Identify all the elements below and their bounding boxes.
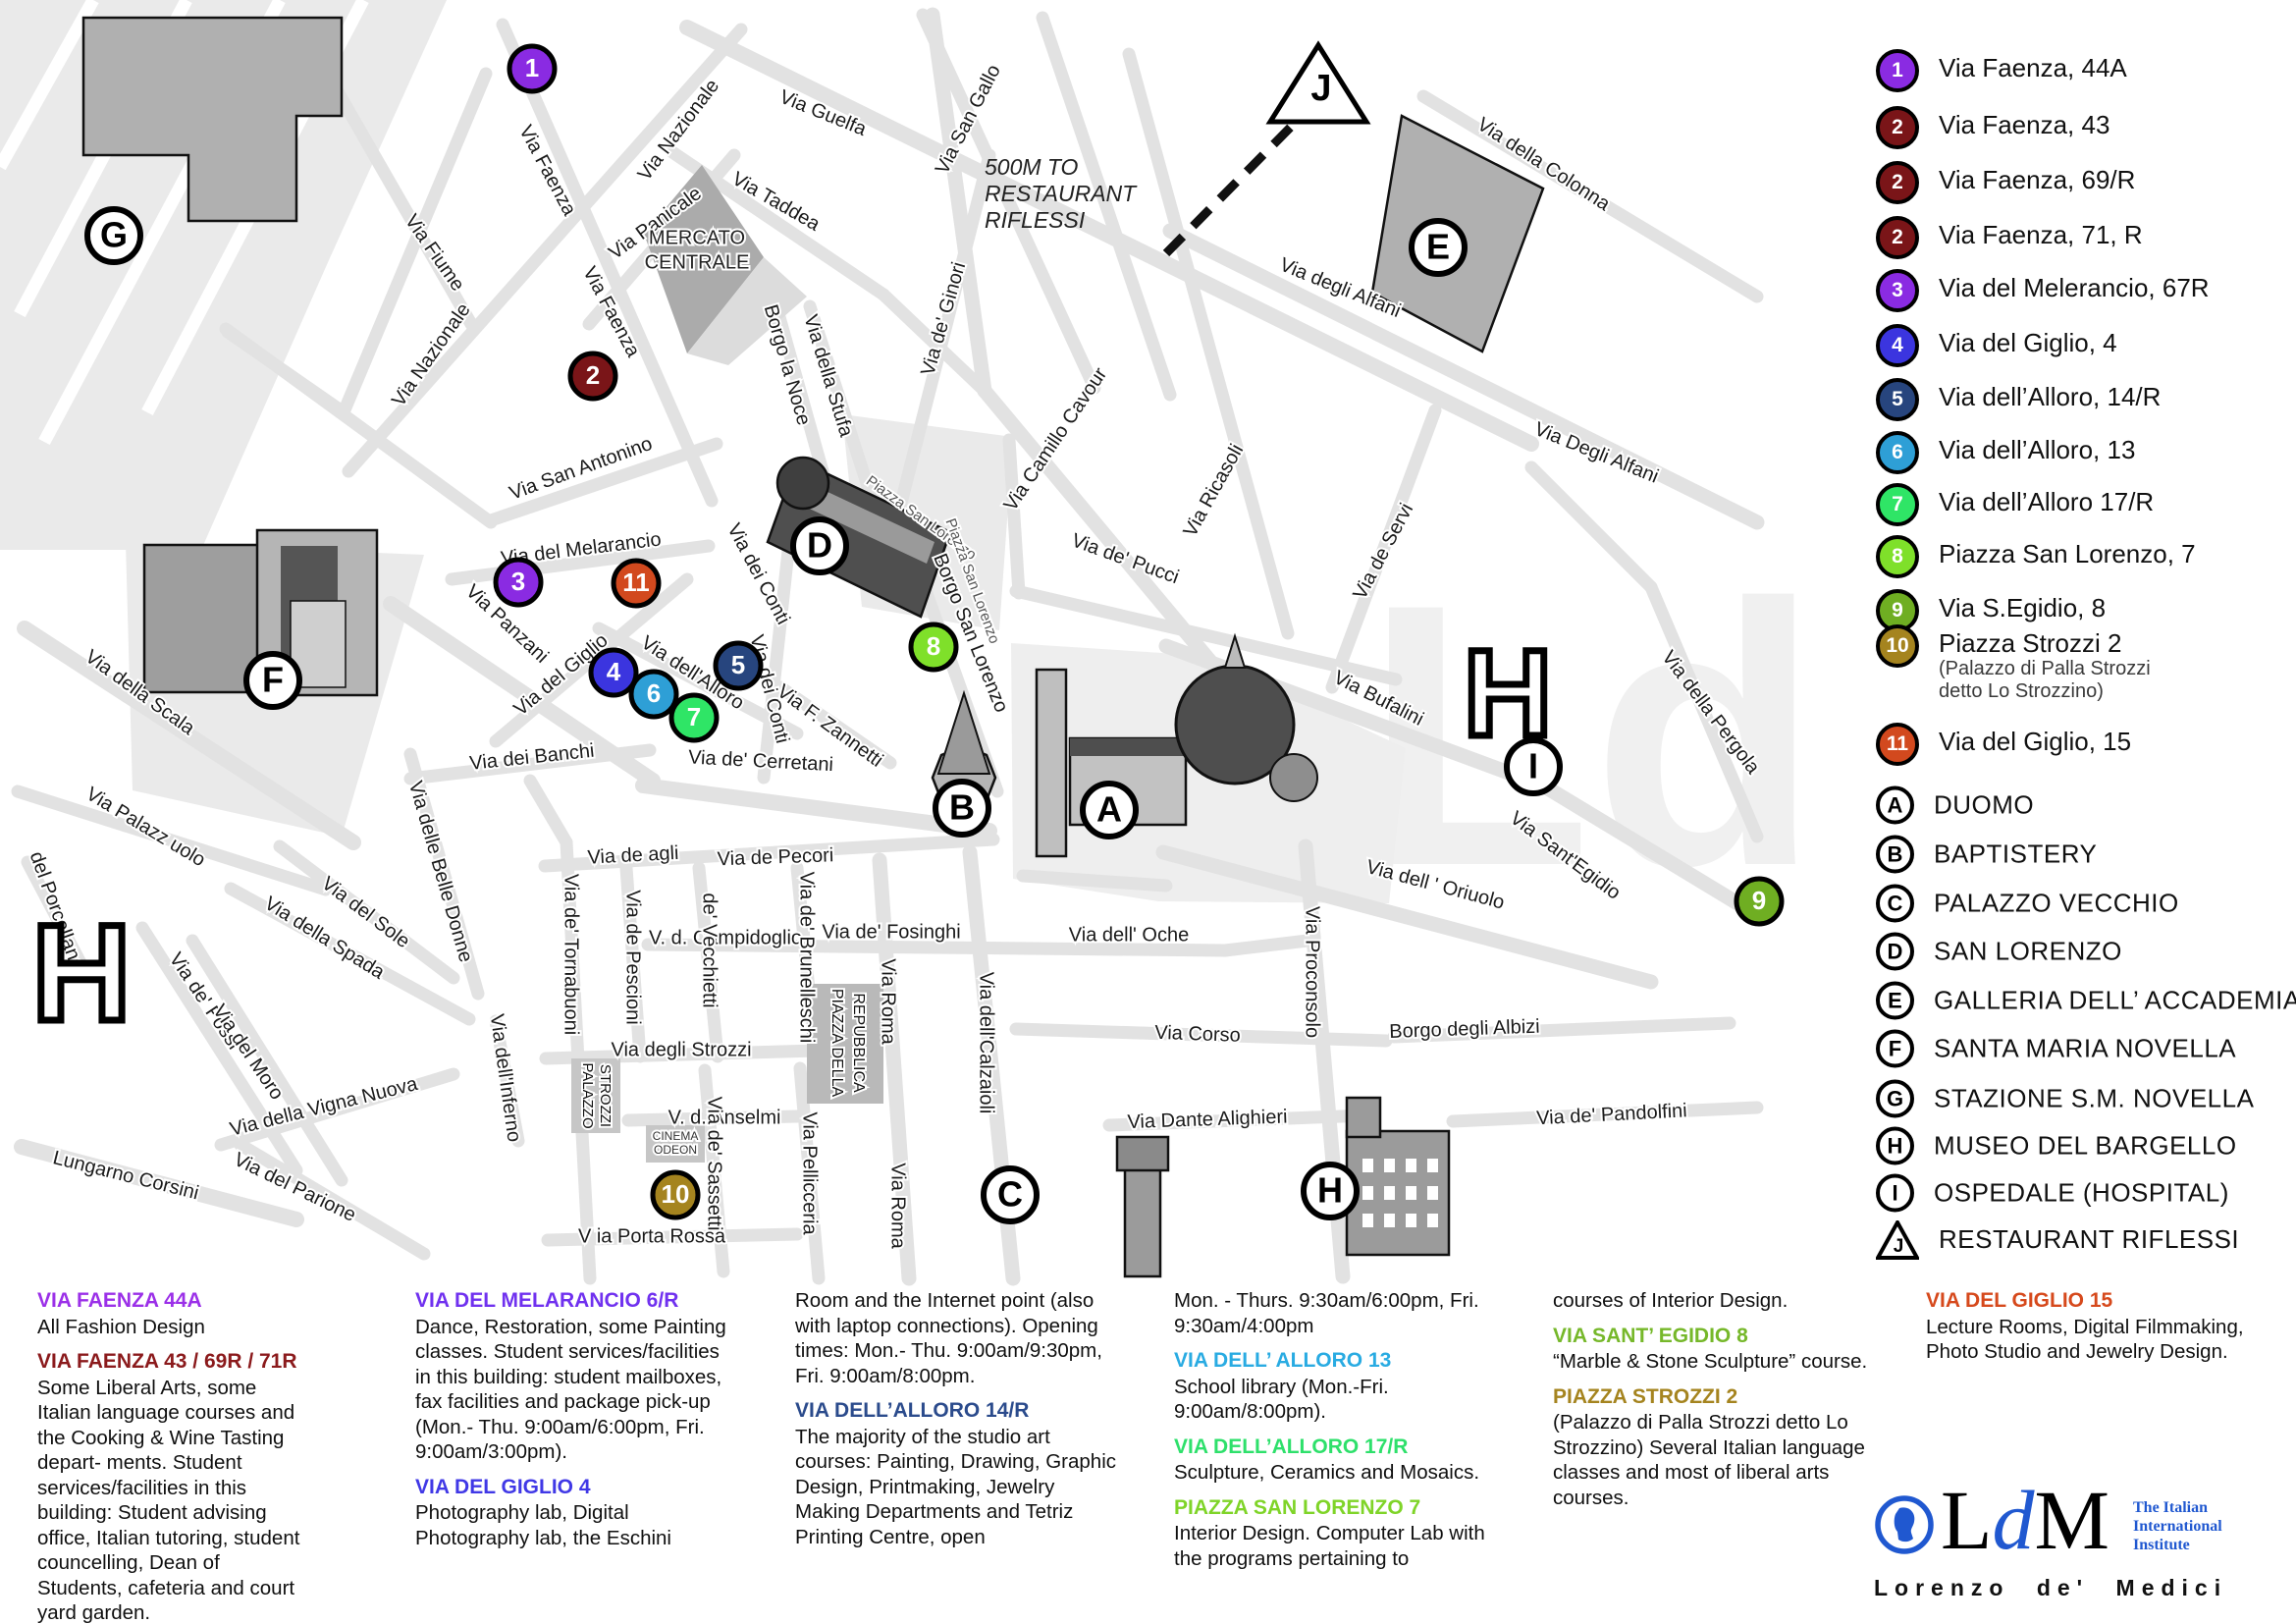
street-label: Via dell'Inferno	[486, 1012, 525, 1143]
notes-column-2: VIA DEL MELARANCIO 6/RDance, Restoration…	[415, 1288, 727, 1550]
ldm-institute-line: Institute	[2133, 1536, 2222, 1554]
bargello-window	[1384, 1159, 1395, 1172]
note-heading: VIA DEL GIGLIO 15	[1926, 1288, 2260, 1314]
bargello-window	[1362, 1214, 1373, 1227]
svg-text:4: 4	[607, 657, 621, 686]
landmark-duomo-campanile	[1037, 670, 1066, 856]
notes-column-3: Room and the Internet point (also with l…	[795, 1288, 1119, 1549]
svg-text:9: 9	[1752, 886, 1766, 915]
note-body: School library (Mon.-Fri. 9:00am/8:00pm)…	[1174, 1375, 1498, 1425]
street-label: Via de' Pucci	[1069, 529, 1182, 588]
note-body: Some Liberal Arts, some Italian language…	[37, 1376, 304, 1624]
legend-item-label: SAN LORENZO	[1934, 933, 2122, 966]
note-body: Mon. - Thurs. 9:30am/6:00pm, Fri. 9:30am…	[1174, 1288, 1498, 1338]
ldm-name: Lorenzo de' Medici	[1874, 1575, 2227, 1601]
legend-item-J: JRESTAURANT RIFLESSI	[1876, 1220, 2239, 1260]
map-marker-4: 4	[591, 650, 636, 695]
bargello-window	[1384, 1214, 1395, 1227]
note-body: All Fashion Design	[37, 1315, 304, 1340]
legend-item-label: Piazza San Lorenzo, 7	[1939, 535, 2196, 568]
svg-text:H: H	[1317, 1170, 1343, 1211]
svg-text:I: I	[1528, 746, 1538, 786]
street-label: MERCATO	[649, 227, 745, 248]
legend-item-I: IOSPEDALE (HOSPITAL)	[1876, 1174, 2229, 1213]
svg-text:D: D	[807, 525, 832, 566]
legend-marker-icon: 7	[1876, 483, 1919, 526]
landmark-san-lorenzo-dome	[777, 458, 828, 509]
map-marker-9: 9	[1736, 879, 1782, 924]
legend-letter-icon: G	[1876, 1080, 1914, 1118]
map-letter-F: F	[246, 654, 299, 707]
legend-marker-icon: 10	[1876, 624, 1919, 668]
street-label: Via dell'Calzaioli	[976, 972, 997, 1114]
ldm-institute-lines: The ItalianInternationalInstitute	[2133, 1498, 2222, 1554]
landmark-palazzo-vecchio-tower	[1125, 1164, 1160, 1276]
map-letter-H: H	[1304, 1164, 1357, 1218]
legend-letter-icon: A	[1876, 786, 1914, 825]
legend-item-label: Piazza Strozzi 2(Palazzo di Palla Strozz…	[1939, 624, 2151, 703]
legend-item-D: DSAN LORENZO	[1876, 933, 2122, 971]
map-letter-D: D	[793, 519, 846, 572]
ldm-logo: LdM The ItalianInternationalInstitute Lo…	[1870, 1485, 2292, 1622]
restaurant-route-note: RIFLESSI	[985, 207, 1086, 233]
legend-item-6: 6Via dell’Alloro, 13	[1876, 431, 2135, 474]
road-segment	[1225, 941, 1308, 950]
legend-item-B: BBAPTISTERY	[1876, 836, 2097, 874]
legend-letter-icon: E	[1876, 982, 1914, 1020]
legend-letter-icon: H	[1876, 1127, 1914, 1165]
legend-item-5: 5Via dell’Alloro, 14/R	[1876, 378, 2161, 421]
note-body: Photography lab, Digital Photography lab…	[415, 1500, 727, 1550]
landmark-smn-cloister	[144, 545, 260, 692]
bargello-window	[1427, 1186, 1438, 1200]
legend-item-label: BAPTISTERY	[1934, 836, 2097, 869]
bargello-window	[1406, 1159, 1416, 1172]
bargello-window	[1406, 1214, 1416, 1227]
note-heading: VIA DEL GIGLIO 4	[415, 1475, 727, 1500]
map-marker-7: 7	[671, 695, 717, 740]
street-label: Via de' Sassetti	[704, 1097, 725, 1231]
legend-item-2: 2Via Faenza, 71, R	[1876, 216, 2143, 259]
street-label: STROZZI	[597, 1064, 614, 1127]
street-label: Lungarno Corsini	[51, 1147, 201, 1204]
restaurant-route-note: RESTAURANT	[985, 181, 1138, 206]
landmark-bargello-tower	[1347, 1098, 1380, 1137]
legend-item-label: OSPEDALE (HOSPITAL)	[1934, 1174, 2229, 1208]
svg-text:1: 1	[525, 53, 539, 82]
map-marker-5: 5	[716, 643, 761, 688]
legend-item-label: Via Faenza, 43	[1939, 106, 2109, 139]
note-body: “Marble & Stone Sculpture” course.	[1553, 1349, 1869, 1375]
legend-item-label: Via Faenza, 71, R	[1939, 216, 2143, 249]
big-letter-h: H	[31, 895, 131, 1050]
legend-marker-icon: 5	[1876, 378, 1919, 421]
street-label: Via dell' Oche	[1069, 924, 1189, 946]
ldm-institute-line: International	[2133, 1517, 2222, 1536]
street-label: V. d. Campidoglio	[649, 927, 802, 948]
legend-item-10: 10Piazza Strozzi 2(Palazzo di Palla Stro…	[1876, 624, 2151, 703]
map-letter-C: C	[984, 1168, 1037, 1221]
legend-item-2: 2Via Faenza, 69/R	[1876, 161, 2135, 204]
note-heading: VIA DEL MELARANCIO 6/R	[415, 1288, 727, 1314]
bargello-window	[1384, 1186, 1395, 1200]
note-body: Lecture Rooms, Digital Filmmaking, Photo…	[1926, 1315, 2260, 1365]
legend-item-C: CPALAZZO VECCHIO	[1876, 885, 2179, 923]
svg-text:F: F	[262, 660, 284, 700]
street-label: CENTRALE	[645, 251, 750, 273]
road-segment	[530, 781, 566, 842]
street-label: CINEMA	[653, 1129, 699, 1143]
legend-item-label: PALAZZO VECCHIO	[1934, 885, 2179, 918]
street-label: Via delle Belle Donne	[404, 779, 477, 965]
street-label: Via Degli Alfani	[1531, 418, 1662, 488]
note-heading: VIA SANT’ EGIDIO 8	[1553, 1324, 1869, 1349]
landmark-palazzo-vecchio-top	[1117, 1137, 1168, 1170]
map-marker-2: 2	[570, 353, 615, 399]
legend-marker-icon: 2	[1876, 106, 1919, 149]
legend-item-3: 3Via del Melerancio, 67R	[1876, 269, 2210, 312]
landmark-duomo-apse	[1270, 754, 1317, 801]
map-marker-3: 3	[496, 560, 541, 605]
legend-item-F: FSANTA MARIA NOVELLA	[1876, 1030, 2236, 1068]
street-label: ODEON	[654, 1143, 697, 1157]
street-label: Via de Pescioni	[622, 890, 644, 1025]
svg-text:G: G	[100, 215, 128, 255]
legend-letter-icon: D	[1876, 933, 1914, 971]
legend-item-label: DUOMO	[1934, 786, 2034, 820]
note-body: Dance, Restoration, some Painting classe…	[415, 1315, 727, 1465]
map-letter-G: G	[87, 209, 140, 262]
street-label: Via Roma	[887, 1163, 909, 1249]
legend-item-label: Via dell’Alloro 17/R	[1939, 483, 2154, 516]
map-marker-1: 1	[509, 46, 555, 91]
landmark-duomo-nave-roof	[1070, 738, 1186, 756]
svg-text:A: A	[1096, 789, 1122, 830]
map-letter-B: B	[935, 782, 988, 835]
legend-marker-icon: 3	[1876, 269, 1919, 312]
legend-item-label: Via dell’Alloro, 14/R	[1939, 378, 2161, 411]
legend-item-label: Via del Giglio, 15	[1939, 723, 2131, 756]
svg-text:8: 8	[927, 631, 940, 661]
note-body: Sculpture, Ceramics and Mosaics.	[1174, 1460, 1498, 1486]
map-svg: LdMVia FaenzaVia FaenzaVia NazionaleVia …	[0, 0, 1796, 1286]
street-label: Via de' Brunelleschi	[796, 872, 818, 1044]
legend-marker-icon: 1	[1876, 49, 1919, 92]
map-marker-10: 10	[653, 1172, 698, 1218]
map-page: LdMVia FaenzaVia FaenzaVia NazionaleVia …	[0, 0, 2296, 1624]
ldm-institute-line: The Italian	[2133, 1498, 2222, 1517]
restaurant-route-note: 500M TO	[985, 154, 1079, 180]
street-label: Via degli Strozzi	[611, 1039, 751, 1060]
map-letter-I: I	[1507, 740, 1560, 793]
street-label: Via Nazionale	[388, 299, 475, 410]
street-label: Via Corso	[1154, 1022, 1241, 1047]
street-label: Borgo degli Albizi	[1389, 1016, 1540, 1043]
svg-text:7: 7	[687, 702, 701, 731]
legend-item-11: 11Via del Giglio, 15	[1876, 723, 2131, 766]
legend-item-label: Via Faenza, 69/R	[1939, 161, 2135, 194]
legend-item-label: STAZIONE S.M. NOVELLA	[1934, 1080, 2254, 1113]
legend-letter-icon: B	[1876, 836, 1914, 874]
note-body: courses of Interior Design.	[1553, 1288, 1869, 1314]
legend: 1Via Faenza, 44A2Via Faenza, 432Via Faen…	[1858, 0, 2296, 1276]
legend-letter-icon: C	[1876, 885, 1914, 923]
ldm-emblem-icon	[1870, 1490, 1939, 1559]
map-letter-A: A	[1083, 784, 1136, 837]
notes-column-6: VIA DEL GIGLIO 15Lecture Rooms, Digital …	[1926, 1288, 2260, 1365]
legend-item-label: Via del Giglio, 4	[1939, 324, 2117, 357]
map-letter-E: E	[1412, 221, 1465, 274]
legend-triangle-icon: J	[1876, 1220, 1919, 1260]
street-label: Via de Pecori	[717, 844, 833, 870]
legend-marker-icon: 4	[1876, 324, 1919, 367]
svg-text:B: B	[949, 787, 975, 828]
legend-item-A: ADUOMO	[1876, 786, 2034, 825]
legend-item-4: 4Via del Giglio, 4	[1876, 324, 2117, 367]
svg-text:11: 11	[622, 568, 650, 597]
legend-item-label: RESTAURANT RIFLESSI	[1939, 1220, 2239, 1254]
note-heading: PIAZZA STROZZI 2	[1553, 1384, 1869, 1410]
legend-marker-icon: 2	[1876, 161, 1919, 204]
note-body: Room and the Internet point (also with l…	[795, 1288, 1119, 1388]
map-marker-11: 11	[614, 561, 659, 606]
street-label: Via de' Tornabuoni	[561, 874, 582, 1035]
legend-item-label: Via S.Egidio, 8	[1939, 589, 2106, 623]
svg-text:5: 5	[731, 650, 745, 679]
note-body: Interior Design. Computer Lab with the p…	[1174, 1521, 1498, 1571]
ldm-wordmark: LdM	[1941, 1471, 2109, 1569]
legend-item-7: 7Via dell’Alloro 17/R	[1876, 483, 2154, 526]
note-heading: VIA DELL’ ALLORO 13	[1174, 1348, 1498, 1374]
legend-item-2: 2Via Faenza, 43	[1876, 106, 2109, 149]
note-heading: VIA FAENZA 44A	[37, 1288, 304, 1314]
ldm-letter-l: L	[1941, 1473, 1993, 1567]
svg-text:3: 3	[511, 567, 525, 596]
legend-marker-icon: 11	[1876, 723, 1919, 766]
legend-item-E: EGALLERIA DELL’ ACCADEMIA	[1876, 982, 2296, 1020]
legend-marker-icon: 6	[1876, 431, 1919, 474]
notes-column-1: VIA FAENZA 44AAll Fashion DesignVIA FAEN…	[37, 1288, 304, 1624]
map-marker-6: 6	[631, 672, 676, 717]
legend-item-1: 1Via Faenza, 44A	[1876, 49, 2127, 92]
road-segment	[1009, 440, 1019, 593]
street-label: Via Pellicceria	[799, 1111, 821, 1235]
svg-text:2: 2	[586, 360, 600, 390]
street-label: Via Roma	[878, 958, 899, 1045]
note-heading: VIA DELL’ALLORO 17/R	[1174, 1435, 1498, 1460]
svg-text:6: 6	[647, 678, 661, 708]
ldm-letter-d: d	[1993, 1473, 2035, 1567]
street-label: Via de' Fosinghi	[822, 921, 960, 943]
street-label: PIAZZA DELLA	[828, 989, 845, 1098]
legend-item-label: Via Faenza, 44A	[1939, 49, 2127, 82]
legend-item-8: 8Piazza San Lorenzo, 7	[1876, 535, 2196, 578]
bargello-window	[1362, 1186, 1373, 1200]
legend-marker-icon: 8	[1876, 535, 1919, 578]
legend-item-H: HMUSEO DEL BARGELLO	[1876, 1127, 2237, 1165]
svg-text:10: 10	[662, 1179, 690, 1209]
legend-letter-icon: I	[1876, 1174, 1914, 1213]
ldm-letter-m: M	[2035, 1473, 2109, 1567]
street-label: de' Vecchietti	[699, 893, 721, 1007]
street-label: Via de' Cerretani	[688, 746, 834, 776]
legend-item-G: GSTAZIONE S.M. NOVELLA	[1876, 1080, 2254, 1118]
legend-item-label: GALLERIA DELL’ ACCADEMIA	[1934, 982, 2296, 1015]
svg-text:C: C	[997, 1174, 1023, 1215]
bargello-window	[1427, 1214, 1438, 1227]
legend-marker-icon: 2	[1876, 216, 1919, 259]
svg-text:J: J	[1894, 1236, 1904, 1257]
marker-letter-j: J	[1310, 68, 1331, 109]
note-heading: VIA DELL’ALLORO 14/R	[795, 1398, 1119, 1424]
legend-item-label: Via dell’Alloro, 13	[1939, 431, 2135, 464]
street-label: Via de' Pandolfini	[1536, 1100, 1688, 1129]
street-label: PALAZZO	[579, 1062, 596, 1128]
legend-item-label: SANTA MARIA NOVELLA	[1934, 1030, 2236, 1063]
street-label: Via Ricasoli	[1180, 441, 1249, 541]
notes-column-4: Mon. - Thurs. 9:30am/6:00pm, Fri. 9:30am…	[1174, 1288, 1498, 1571]
bargello-window	[1406, 1186, 1416, 1200]
bargello-window	[1362, 1159, 1373, 1172]
svg-text:E: E	[1426, 227, 1450, 267]
street-label: Via Dante Alighieri	[1127, 1106, 1288, 1133]
map-marker-8: 8	[911, 624, 956, 670]
note-body: (Palazzo di Palla Strozzi detto Lo Stroz…	[1553, 1410, 1869, 1510]
street-label: Via Proconsolo	[1302, 906, 1323, 1038]
notes-column-5: courses of Interior Design.VIA SANT’ EGI…	[1553, 1288, 1869, 1510]
street-label: REPUBBLICA	[850, 993, 867, 1093]
note-heading: PIAZZA SAN LORENZO 7	[1174, 1495, 1498, 1521]
bargello-window	[1427, 1159, 1438, 1172]
legend-item-sublabel: (Palazzo di Palla Strozzi detto Lo Stroz…	[1939, 658, 2151, 703]
legend-item-label: MUSEO DEL BARGELLO	[1934, 1127, 2237, 1161]
note-body: The majority of the studio art courses: …	[795, 1425, 1119, 1550]
legend-item-label: Via del Melerancio, 67R	[1939, 269, 2210, 302]
note-heading: VIA FAENZA 43 / 69R / 71R	[37, 1349, 304, 1375]
legend-letter-icon: F	[1876, 1030, 1914, 1068]
